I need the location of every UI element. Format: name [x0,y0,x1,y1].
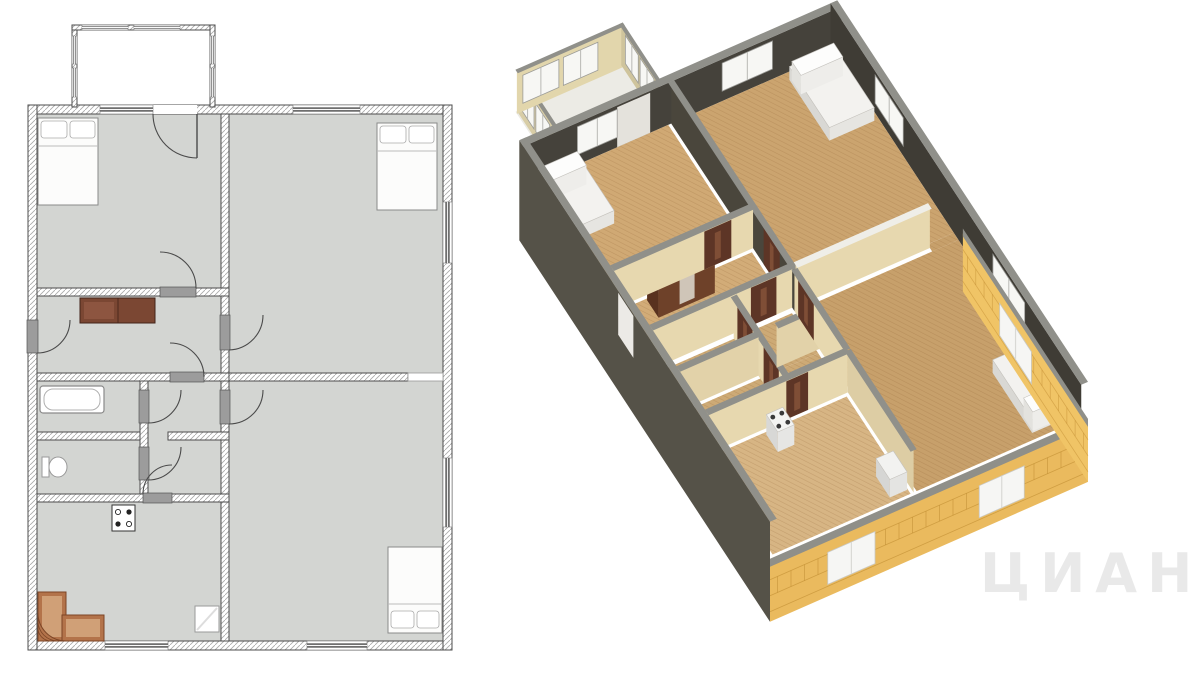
bathtub [40,386,104,413]
wall-east [443,105,452,650]
bed-bedroom2 [377,123,437,210]
wall3d-bed1-hall-door-panel [715,230,721,260]
stove [112,505,135,531]
kitchen-sink [195,606,219,632]
door-hall-vest [170,372,204,382]
wardrobe [80,298,155,323]
wall3d-kitchen-north-door-panel [794,381,800,411]
burner [779,411,784,416]
wall-kitchen-north [37,494,229,502]
floorplan-page: ЦИАН [0,0,1200,675]
burner [770,415,775,420]
bed-living [388,547,442,633]
wall-west [28,105,37,650]
bed-bedroom1 [38,118,98,205]
door-kitchen [143,493,172,503]
vestibule1-floor [148,381,221,440]
toilet [42,457,67,477]
burner [785,420,790,425]
wall-bed1-hall [37,288,229,296]
floorplan-canvas: ЦИАН [0,0,1200,675]
bed2-living-opening [408,373,443,381]
plan-2d [27,25,452,650]
wall-kitchen-living [221,502,229,641]
burner [776,424,781,429]
wall-south [28,641,452,650]
plan-3d [516,0,1089,621]
wall3d-vest-living-door-panel [804,294,808,327]
door-bath [139,390,149,423]
wall-north [28,105,452,114]
door-bed1 [160,287,196,297]
wall3d-bed1-bed2-door-panel [770,242,774,275]
wall-bath-wc [37,432,140,440]
door-gap [153,105,197,114]
wall-bed2-living [229,373,408,381]
watermark: ЦИАН [980,542,1200,605]
wall3d-hall-south-door-panel [761,287,767,317]
door-bed2 [220,315,230,350]
door-living [220,390,230,424]
door-entrance [27,320,38,353]
door-wc [139,447,149,480]
wall-vest-divider [168,432,229,440]
